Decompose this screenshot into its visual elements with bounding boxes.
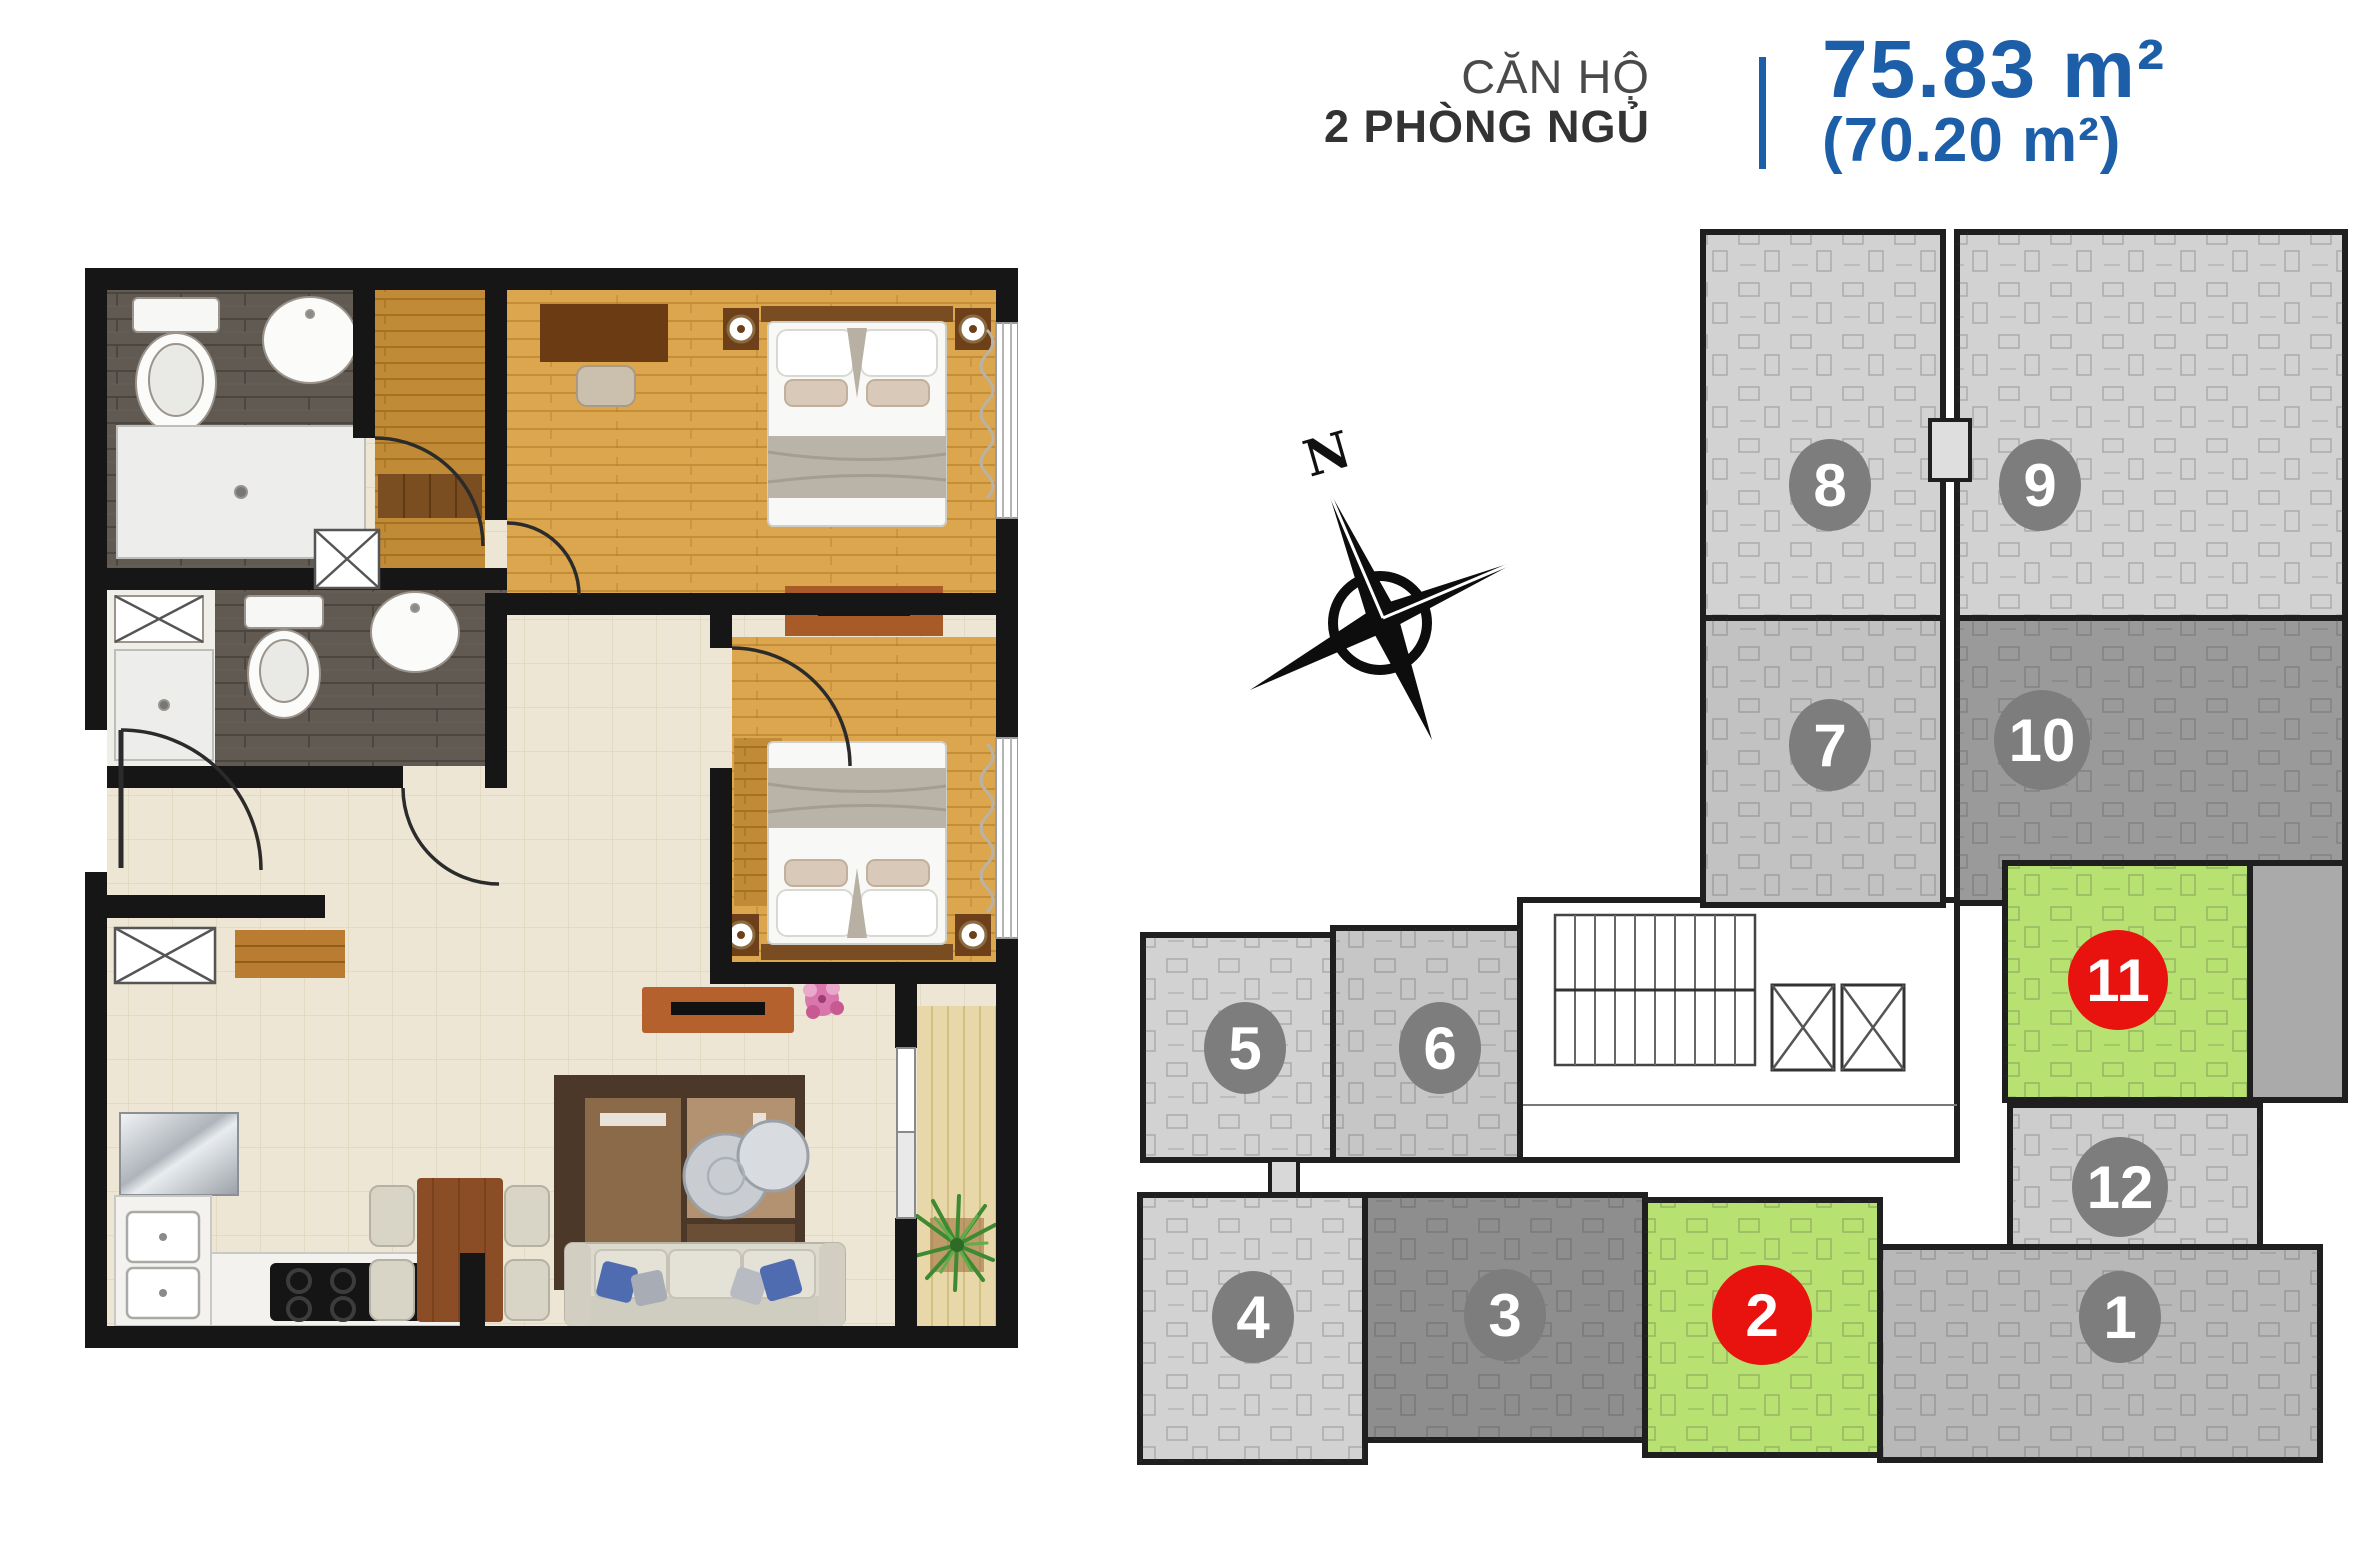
compass-n-label: N bbox=[1297, 419, 1357, 488]
unit-badge-6[interactable]: 6 bbox=[1399, 1002, 1481, 1094]
desk-chair bbox=[577, 366, 635, 406]
area-secondary: (70.20 m²) bbox=[1822, 110, 2166, 172]
unit-badge-10[interactable]: 10 bbox=[1994, 690, 2090, 790]
header-label-line1: CĂN HỘ bbox=[1150, 52, 1650, 102]
unit-badge-12[interactable]: 12 bbox=[2072, 1137, 2168, 1237]
unit-badge-5[interactable]: 5 bbox=[1204, 1002, 1286, 1094]
unit-9[interactable] bbox=[1957, 232, 2345, 618]
unit-badge-8[interactable]: 8 bbox=[1789, 439, 1871, 531]
unit-badge-1[interactable]: 1 bbox=[2079, 1271, 2161, 1363]
svg-text:8: 8 bbox=[1813, 452, 1846, 519]
unit-badge-3[interactable]: 3 bbox=[1464, 1269, 1546, 1361]
svg-text:5: 5 bbox=[1228, 1015, 1261, 1082]
unit-badge-7[interactable]: 7 bbox=[1789, 699, 1871, 791]
svg-text:12: 12 bbox=[2087, 1154, 2154, 1221]
sofa bbox=[565, 1243, 845, 1326]
band-link bbox=[1270, 1160, 1298, 1195]
dining-chair bbox=[370, 1186, 414, 1246]
bed-double bbox=[761, 742, 953, 960]
svg-text:9: 9 bbox=[2023, 452, 2056, 519]
apartment-floor-plan bbox=[85, 268, 1018, 1348]
unit-badge-4[interactable]: 4 bbox=[1212, 1271, 1294, 1363]
svg-text:11: 11 bbox=[2086, 947, 2149, 1014]
floorplan-sheet: CĂN HỘ 2 PHÒNG NGỦ 75.83 m² (70.20 m²) bbox=[0, 0, 2362, 1561]
wall-closet bbox=[315, 530, 379, 588]
dining-chair bbox=[505, 1260, 549, 1320]
svg-text:4: 4 bbox=[1236, 1284, 1270, 1351]
header-area: 75.83 m² (70.20 m²) bbox=[1822, 30, 2166, 172]
flower-vase bbox=[803, 981, 844, 1019]
building-key-plan: N bbox=[1110, 225, 2362, 1470]
svg-text:2: 2 bbox=[1745, 1282, 1778, 1349]
dining-chair bbox=[370, 1260, 414, 1320]
bed-double bbox=[761, 306, 953, 526]
compass-rose: N bbox=[1250, 419, 1520, 740]
pillow-gray bbox=[630, 1269, 668, 1307]
unit-11[interactable] bbox=[2005, 863, 2345, 1100]
desk bbox=[540, 304, 668, 362]
area-primary: 75.83 m² bbox=[1822, 30, 2166, 110]
sliding-door bbox=[897, 1048, 915, 1218]
unit-badge-2[interactable]: 2 bbox=[1712, 1265, 1812, 1365]
svg-text:3: 3 bbox=[1488, 1282, 1521, 1349]
unit-8[interactable] bbox=[1703, 232, 1943, 618]
header-label-line2: 2 PHÒNG NGỦ bbox=[1150, 102, 1650, 152]
bench bbox=[235, 930, 345, 978]
fridge bbox=[120, 1113, 238, 1195]
svg-text:1: 1 bbox=[2103, 1284, 2136, 1351]
tower-link bbox=[1930, 420, 1970, 480]
svg-text:10: 10 bbox=[2009, 707, 2076, 774]
svg-text:6: 6 bbox=[1423, 1015, 1456, 1082]
building-core bbox=[1520, 900, 1957, 1160]
unit-badge-9[interactable]: 9 bbox=[1999, 439, 2081, 531]
header-label: CĂN HỘ 2 PHÒNG NGỦ bbox=[1150, 52, 1650, 152]
tv bbox=[671, 1002, 765, 1015]
header-divider bbox=[1759, 57, 1766, 169]
dining-chair bbox=[505, 1186, 549, 1246]
svg-text:7: 7 bbox=[1813, 712, 1846, 779]
unit-badge-11[interactable]: 11 bbox=[2068, 930, 2168, 1030]
coffee-table bbox=[738, 1121, 808, 1191]
